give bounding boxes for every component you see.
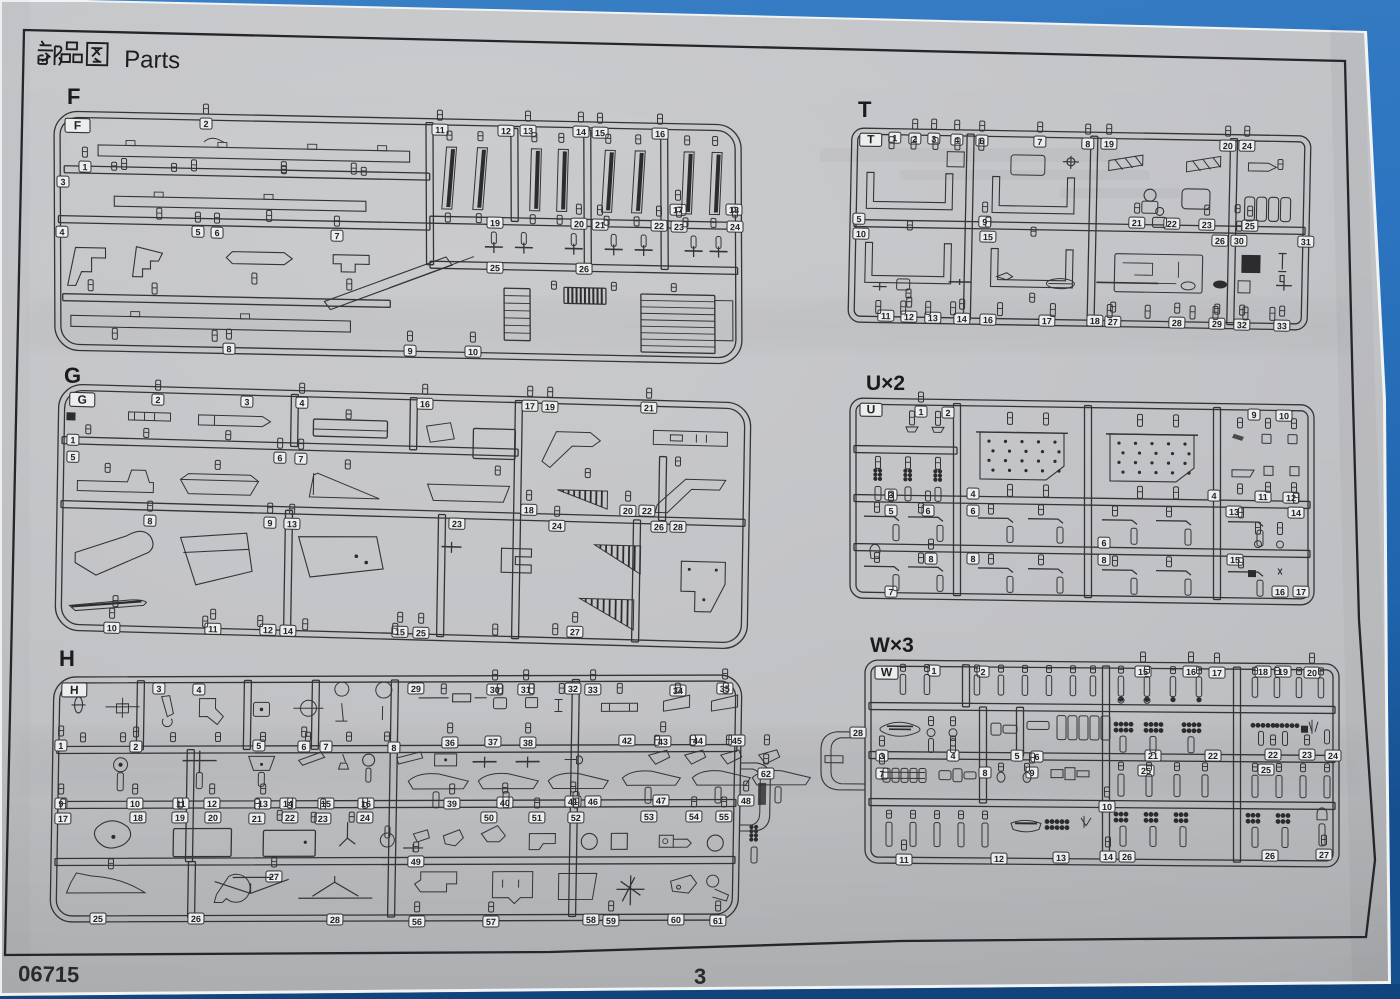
svg-text:11: 11 xyxy=(435,125,445,135)
svg-text:4: 4 xyxy=(1211,491,1216,501)
svg-text:8: 8 xyxy=(391,743,396,753)
svg-text:15: 15 xyxy=(1138,667,1148,677)
svg-text:33: 33 xyxy=(1277,321,1287,331)
svg-text:58: 58 xyxy=(586,915,596,925)
svg-text:11: 11 xyxy=(899,855,909,865)
svg-text:54: 54 xyxy=(689,812,699,822)
svg-text:28: 28 xyxy=(673,522,683,532)
svg-text:8: 8 xyxy=(1085,139,1090,149)
svg-text:26: 26 xyxy=(1122,852,1132,862)
svg-text:21: 21 xyxy=(252,814,262,824)
svg-text:51: 51 xyxy=(532,813,542,823)
svg-text:18: 18 xyxy=(524,505,534,515)
svg-text:32: 32 xyxy=(568,684,578,694)
svg-text:53: 53 xyxy=(644,812,654,822)
svg-text:5: 5 xyxy=(195,227,200,237)
svg-text:9: 9 xyxy=(267,518,272,528)
svg-text:59: 59 xyxy=(606,916,616,926)
svg-text:18: 18 xyxy=(133,813,143,823)
svg-text:15: 15 xyxy=(983,232,993,242)
svg-text:21: 21 xyxy=(595,220,605,230)
svg-text:22: 22 xyxy=(1268,750,1278,760)
svg-text:2: 2 xyxy=(204,119,209,129)
svg-text:19: 19 xyxy=(490,218,500,228)
svg-text:14: 14 xyxy=(1291,508,1301,518)
svg-text:06715: 06715 xyxy=(18,961,80,987)
svg-text:18: 18 xyxy=(1258,667,1268,677)
svg-text:10: 10 xyxy=(856,229,866,239)
svg-text:5: 5 xyxy=(256,741,261,751)
svg-text:28: 28 xyxy=(1172,318,1182,328)
svg-text:F: F xyxy=(67,84,80,109)
svg-text:47: 47 xyxy=(656,796,666,806)
svg-text:H: H xyxy=(59,646,75,671)
svg-text:2: 2 xyxy=(155,395,160,405)
svg-text:28: 28 xyxy=(853,728,863,738)
svg-text:3: 3 xyxy=(60,177,65,187)
svg-text:17: 17 xyxy=(58,814,68,824)
svg-text:20: 20 xyxy=(1307,668,1317,678)
svg-text:H: H xyxy=(70,683,79,697)
svg-text:1: 1 xyxy=(58,741,63,751)
svg-text:27: 27 xyxy=(1108,317,1118,327)
svg-text:9: 9 xyxy=(1029,768,1034,778)
svg-text:11: 11 xyxy=(881,311,891,321)
svg-text:7: 7 xyxy=(334,231,339,241)
svg-text:26: 26 xyxy=(654,522,664,532)
svg-text:16: 16 xyxy=(983,315,993,325)
svg-text:44: 44 xyxy=(693,736,703,746)
svg-text:8: 8 xyxy=(147,516,152,526)
svg-text:21: 21 xyxy=(1132,218,1142,228)
svg-text:22: 22 xyxy=(642,506,652,516)
svg-text:5: 5 xyxy=(1014,751,1019,761)
svg-text:1: 1 xyxy=(918,407,923,417)
svg-text:6: 6 xyxy=(1034,752,1039,762)
svg-text:50: 50 xyxy=(484,813,494,823)
svg-text:21: 21 xyxy=(644,403,654,413)
svg-text:23: 23 xyxy=(1202,220,1212,230)
svg-text:31: 31 xyxy=(1301,237,1311,247)
svg-text:11: 11 xyxy=(1258,492,1268,502)
svg-text:61: 61 xyxy=(713,916,723,926)
svg-text:28: 28 xyxy=(330,915,340,925)
svg-text:9: 9 xyxy=(982,217,987,227)
svg-text:7: 7 xyxy=(323,742,328,752)
svg-text:4: 4 xyxy=(970,489,975,499)
svg-text:45: 45 xyxy=(732,736,742,746)
svg-text:22: 22 xyxy=(1167,219,1177,229)
svg-text:38: 38 xyxy=(523,738,533,748)
svg-text:2: 2 xyxy=(945,408,950,418)
svg-text:32: 32 xyxy=(1237,320,1247,330)
svg-text:42: 42 xyxy=(622,736,632,746)
svg-text:39: 39 xyxy=(447,799,457,809)
svg-text:14: 14 xyxy=(576,127,586,137)
svg-text:4: 4 xyxy=(59,227,64,237)
svg-text:19: 19 xyxy=(545,402,555,412)
svg-text:8: 8 xyxy=(928,554,933,564)
svg-text:6: 6 xyxy=(925,506,930,516)
svg-text:23: 23 xyxy=(1302,750,1312,760)
svg-text:24: 24 xyxy=(1242,141,1252,151)
svg-text:Parts: Parts xyxy=(124,46,181,74)
svg-text:11: 11 xyxy=(208,624,218,634)
svg-text:U×2: U×2 xyxy=(866,372,905,395)
svg-text:36: 36 xyxy=(445,738,455,748)
svg-text:2: 2 xyxy=(133,742,138,752)
svg-text:6: 6 xyxy=(215,228,220,238)
svg-text:3: 3 xyxy=(879,751,884,761)
svg-text:6: 6 xyxy=(301,742,306,752)
svg-text:10: 10 xyxy=(468,347,478,357)
svg-text:26: 26 xyxy=(1215,236,1225,246)
svg-text:16: 16 xyxy=(1186,667,1196,677)
svg-text:5: 5 xyxy=(888,506,893,516)
svg-text:37: 37 xyxy=(488,737,498,747)
svg-text:3: 3 xyxy=(156,684,161,694)
svg-text:19: 19 xyxy=(175,813,185,823)
svg-text:13: 13 xyxy=(287,519,297,529)
svg-text:23: 23 xyxy=(318,814,328,824)
svg-text:23: 23 xyxy=(452,519,462,529)
svg-text:12: 12 xyxy=(501,126,511,136)
svg-text:7: 7 xyxy=(879,769,884,779)
svg-text:F: F xyxy=(74,118,81,132)
svg-text:4: 4 xyxy=(299,398,304,408)
svg-text:16: 16 xyxy=(1275,587,1285,597)
svg-text:9: 9 xyxy=(408,346,413,356)
svg-text:12: 12 xyxy=(994,854,1004,864)
svg-text:24: 24 xyxy=(730,222,740,232)
svg-text:26: 26 xyxy=(1265,851,1275,861)
svg-text:6: 6 xyxy=(1101,538,1106,548)
svg-text:17: 17 xyxy=(1296,587,1306,597)
svg-text:17: 17 xyxy=(525,401,535,411)
svg-text:25: 25 xyxy=(490,263,500,273)
svg-text:20: 20 xyxy=(1223,141,1233,151)
svg-text:5: 5 xyxy=(70,452,75,462)
svg-text:46: 46 xyxy=(588,797,598,807)
svg-text:24: 24 xyxy=(360,813,370,823)
svg-text:56: 56 xyxy=(412,917,422,927)
svg-text:U: U xyxy=(867,402,876,416)
svg-text:5: 5 xyxy=(856,214,861,224)
svg-text:6: 6 xyxy=(970,506,975,516)
svg-text:25: 25 xyxy=(1261,765,1271,775)
svg-text:T: T xyxy=(858,97,872,122)
svg-text:27: 27 xyxy=(570,627,580,637)
svg-text:27: 27 xyxy=(1319,850,1329,860)
svg-text:33: 33 xyxy=(588,685,598,695)
svg-text:14: 14 xyxy=(1103,852,1113,862)
svg-text:60: 60 xyxy=(671,915,681,925)
svg-text:12: 12 xyxy=(207,799,217,809)
svg-text:3: 3 xyxy=(694,964,706,989)
svg-text:20: 20 xyxy=(208,813,218,823)
svg-text:16: 16 xyxy=(420,399,430,409)
svg-text:1: 1 xyxy=(70,435,75,445)
svg-text:8: 8 xyxy=(982,768,987,778)
svg-text:26: 26 xyxy=(191,914,201,924)
svg-text:1: 1 xyxy=(82,162,87,172)
svg-text:25: 25 xyxy=(416,628,426,638)
svg-text:1: 1 xyxy=(931,666,936,676)
svg-text:26: 26 xyxy=(579,264,589,274)
svg-text:20: 20 xyxy=(623,506,633,516)
svg-text:62: 62 xyxy=(761,769,771,779)
svg-text:29: 29 xyxy=(411,684,421,694)
svg-text:7: 7 xyxy=(298,454,303,464)
svg-text:10: 10 xyxy=(130,799,140,809)
svg-text:10: 10 xyxy=(1279,411,1289,421)
svg-text:G: G xyxy=(77,393,87,407)
svg-text:48: 48 xyxy=(741,796,751,806)
svg-text:17: 17 xyxy=(1042,316,1052,326)
svg-text:29: 29 xyxy=(1212,319,1222,329)
svg-text:10: 10 xyxy=(1102,802,1112,812)
svg-text:8: 8 xyxy=(1101,555,1106,565)
svg-text:G: G xyxy=(64,363,81,388)
svg-text:4: 4 xyxy=(196,685,201,695)
svg-text:24: 24 xyxy=(552,521,562,531)
svg-text:24: 24 xyxy=(1328,751,1338,761)
svg-text:22: 22 xyxy=(654,221,664,231)
svg-text:8: 8 xyxy=(227,344,232,354)
svg-text:57: 57 xyxy=(486,917,496,927)
svg-text:10: 10 xyxy=(107,623,117,633)
svg-text:49: 49 xyxy=(411,857,421,867)
svg-text:7: 7 xyxy=(1037,137,1042,147)
svg-text:30: 30 xyxy=(1234,236,1244,246)
svg-text:17: 17 xyxy=(1212,668,1222,678)
svg-text:8: 8 xyxy=(970,554,975,564)
svg-text:12: 12 xyxy=(1286,493,1296,503)
svg-text:15: 15 xyxy=(595,128,605,138)
svg-text:13: 13 xyxy=(1229,507,1239,517)
svg-text:19: 19 xyxy=(1104,139,1114,149)
svg-text:22: 22 xyxy=(285,813,295,823)
svg-text:14: 14 xyxy=(283,626,293,636)
svg-text:13: 13 xyxy=(1056,853,1066,863)
svg-text:52: 52 xyxy=(571,813,581,823)
svg-text:20: 20 xyxy=(574,219,584,229)
svg-text:55: 55 xyxy=(719,812,729,822)
svg-text:18: 18 xyxy=(1090,316,1100,326)
svg-text:T: T xyxy=(867,132,875,146)
svg-text:W×3: W×3 xyxy=(870,634,914,657)
svg-text:22: 22 xyxy=(1208,751,1218,761)
svg-text:W: W xyxy=(881,665,893,679)
svg-text:16: 16 xyxy=(655,129,665,139)
svg-text:25: 25 xyxy=(93,914,103,924)
svg-text:6: 6 xyxy=(277,453,282,463)
svg-text:14: 14 xyxy=(957,314,967,324)
svg-text:25: 25 xyxy=(1245,221,1255,231)
svg-text:9: 9 xyxy=(1251,410,1256,420)
svg-text:2: 2 xyxy=(980,667,985,677)
svg-text:3: 3 xyxy=(244,397,249,407)
svg-text:12: 12 xyxy=(263,625,273,635)
